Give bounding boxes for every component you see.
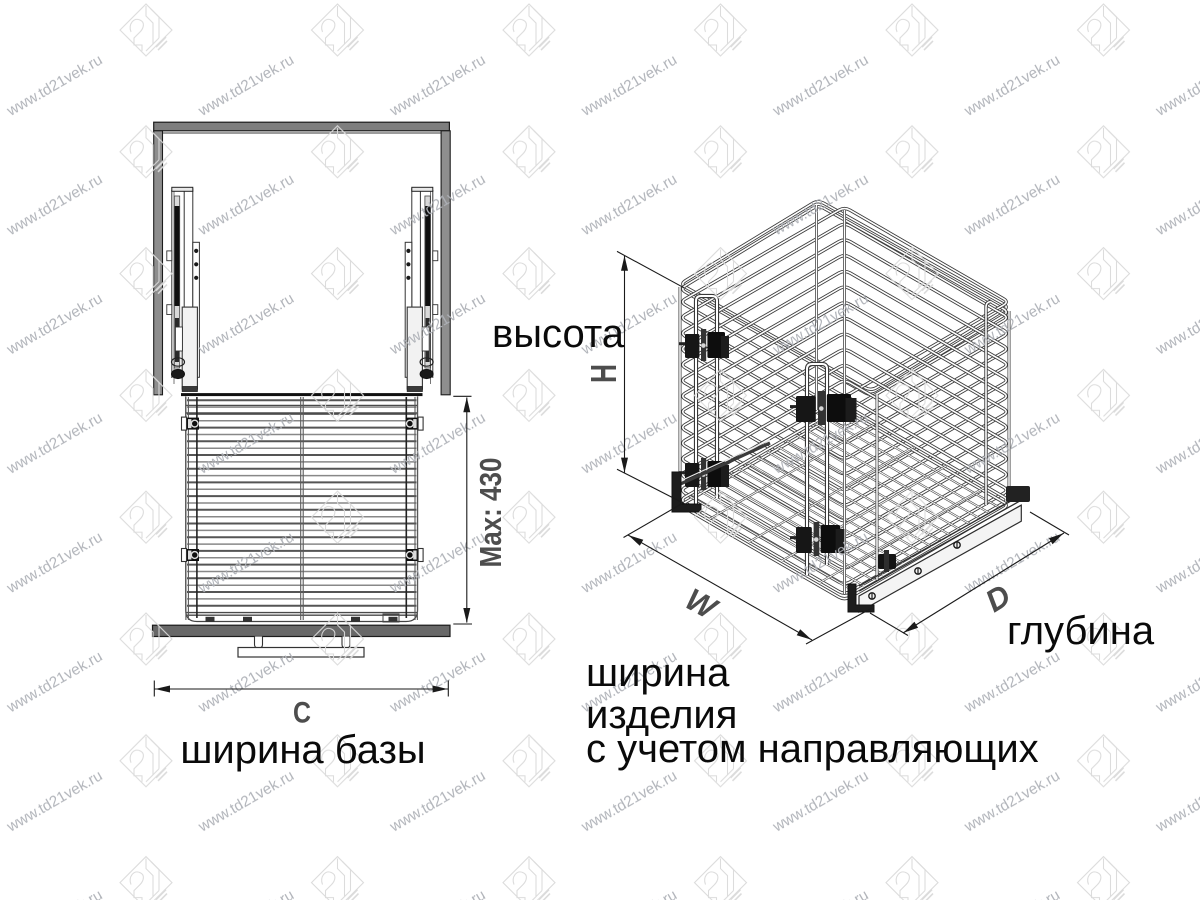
svg-text:H: H	[583, 364, 624, 383]
svg-text:ширина: ширина	[586, 651, 730, 695]
svg-text:ширина базы: ширина базы	[180, 728, 425, 772]
svg-text:с учетом направляющих: с учетом направляющих	[586, 727, 1039, 771]
svg-text:глубина: глубина	[1007, 609, 1155, 653]
svg-text:Max: 430: Max: 430	[473, 458, 508, 568]
svg-text:высота: высота	[492, 312, 625, 356]
svg-text:C: C	[293, 697, 311, 730]
